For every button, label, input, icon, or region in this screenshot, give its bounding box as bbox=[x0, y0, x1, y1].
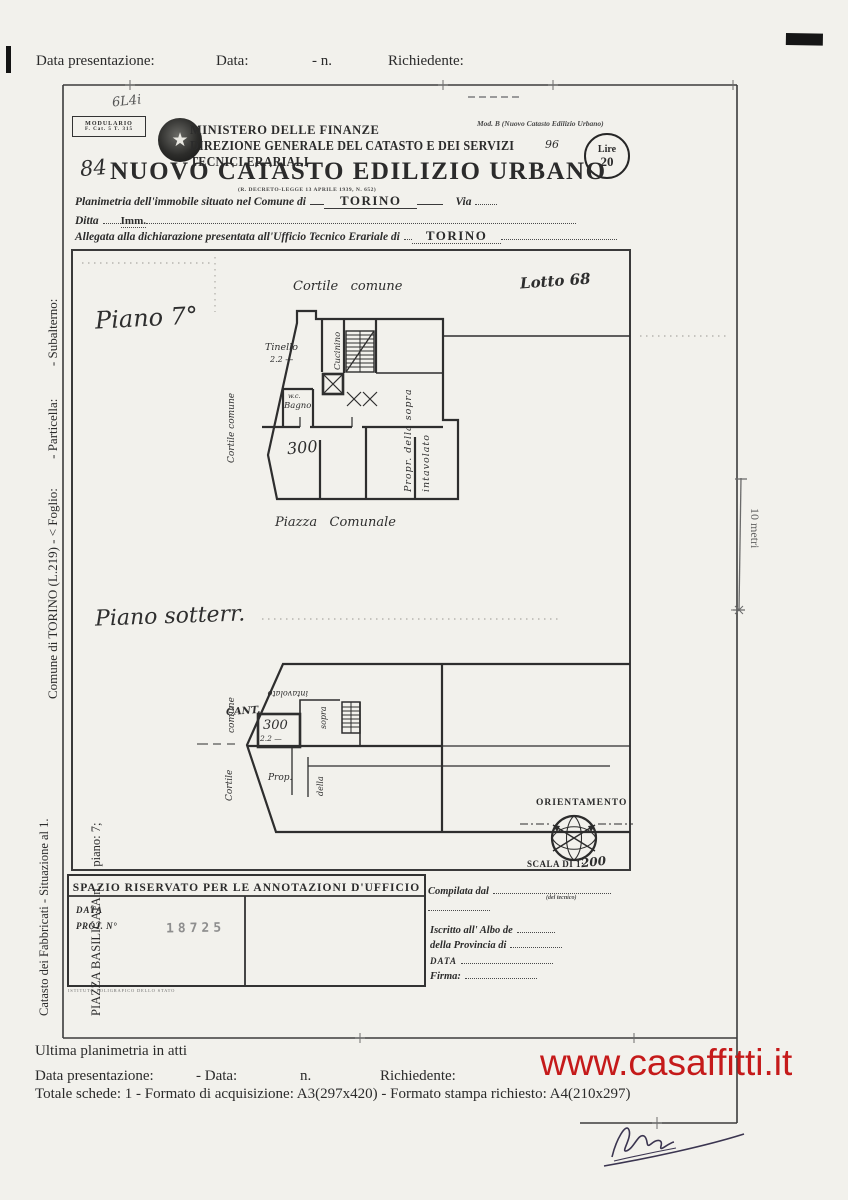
plan-area-number: 300 bbox=[286, 437, 318, 459]
annotation-compilata-row: Compilata dal bbox=[428, 881, 611, 899]
annotation-del-tecnico: (del tecnico) bbox=[546, 895, 577, 901]
piazza-comunale-label: Piazza Comunale bbox=[275, 515, 396, 530]
orientamento-label: ORIENTAMENTO bbox=[536, 798, 627, 808]
modulario-line2: F. Cat. 5 T. 315 bbox=[85, 127, 133, 132]
annotation-tiny-print: ISTITUTO POLIGRAFICO DELLO STATO bbox=[68, 988, 175, 993]
annotation-prot-label: PROT. N° bbox=[76, 921, 117, 931]
basement-dim: 2.2 — bbox=[260, 734, 282, 743]
footer-data-label: - Data: bbox=[196, 1068, 237, 1085]
annotation-firma-row: Firma: bbox=[430, 966, 537, 984]
watermark: www.casaffitti.it bbox=[540, 1042, 792, 1084]
basement-area-number: 300 bbox=[263, 718, 288, 733]
top-label-richiedente: Richiedente: bbox=[388, 53, 464, 70]
form-number-handwritten: 84 bbox=[79, 155, 108, 181]
scale-bar bbox=[733, 478, 747, 614]
basement-prop-label: Prop. bbox=[268, 773, 292, 783]
sidebar-indirizzo-line: PIAZZA BASILICATA n. piano: 7; bbox=[89, 823, 103, 1016]
direzione-handwritten-note: 96 bbox=[545, 138, 559, 151]
basement-floor-label: Piano sotterr. bbox=[95, 601, 246, 631]
scale-bar-label: 10 metri bbox=[748, 508, 762, 548]
top-label-n: - n. bbox=[312, 53, 332, 70]
handwritten-note: 6L4i bbox=[111, 93, 142, 111]
annotation-compilata-label: Compilata dal bbox=[428, 886, 489, 897]
field-ufficio-value: TORINO bbox=[412, 228, 502, 244]
mod-b-label: Mod. B (Nuovo Catasto Edilizio Urbano) bbox=[477, 119, 604, 128]
annotation-header-text: SPAZIO RISERVATO PER LE ANNOTAZIONI D'UF… bbox=[73, 882, 420, 894]
room-tinello-label: Tinello bbox=[265, 342, 298, 353]
scan-artifact-left bbox=[6, 46, 11, 73]
field-comune: Planimetria dell'immobile situato nel Co… bbox=[75, 192, 497, 210]
plan-floor-label: Piano 7° bbox=[94, 301, 198, 334]
sidebar-catasto-line: Catasto dei Fabbricati - Situazione al 1… bbox=[37, 818, 51, 1016]
top-label-data-presentazione: Data presentazione: bbox=[36, 53, 155, 70]
footer-n-label: n. bbox=[300, 1068, 311, 1085]
field-comune-value: TORINO bbox=[324, 193, 418, 209]
scan-artifact-top-right bbox=[786, 33, 823, 46]
annotation-header: SPAZIO RISERVATO PER LE ANNOTAZIONI D'UF… bbox=[68, 878, 425, 896]
room-cucinino-label: Cucinino bbox=[333, 332, 343, 370]
lire-label: Lire bbox=[598, 145, 616, 155]
ministero-title: MINISTERO DELLE FINANZE bbox=[190, 123, 379, 138]
basement-della-label: della bbox=[316, 776, 325, 796]
scanned-cadastral-document: Data presentazione: Data: - n. Richieden… bbox=[0, 0, 848, 1200]
room-tinello-dim: 2.2 — bbox=[270, 355, 293, 364]
field-ditta-label: Ditta bbox=[75, 215, 99, 227]
top-label-data: Data: bbox=[216, 53, 248, 70]
room-wc-label: w.c. bbox=[288, 392, 301, 400]
annotation-prot-value: 18725 bbox=[166, 920, 225, 936]
modulario-box: MODULARIO F. Cat. 5 T. 315 bbox=[72, 116, 146, 137]
field-ufficio: Allegata alla dichiarazione presentata a… bbox=[75, 227, 617, 245]
annotation-firma-label: Firma: bbox=[430, 971, 461, 982]
scala-handwritten-value: 200 bbox=[580, 854, 606, 871]
basement-sopra-label: sopra bbox=[319, 706, 328, 729]
plan-cortile-left-label: Cortile comune bbox=[227, 393, 237, 463]
field-via-label: Via bbox=[455, 196, 471, 208]
annotation-data-label: DATA bbox=[76, 905, 103, 915]
footer-richiedente-label: Richiedente: bbox=[380, 1068, 456, 1085]
room-bagno-label: Bagno bbox=[284, 401, 311, 411]
signature bbox=[604, 1128, 744, 1166]
annotation-data2-label: DATA bbox=[430, 956, 457, 966]
scala-label: SCALA DI 1: bbox=[527, 859, 585, 869]
field-comune-label: Planimetria dell'immobile situato nel Co… bbox=[75, 196, 306, 208]
footer-ultima-label: Ultima planimetria in atti bbox=[35, 1043, 187, 1060]
basement-intavolato-label: intavolato bbox=[268, 689, 308, 698]
document-title: NUOVO CATASTO EDILIZIO URBANO bbox=[110, 158, 607, 186]
footer-totale-label: Totale schede: 1 - Formato di acquisizio… bbox=[35, 1086, 631, 1103]
annotation-provincia-label: della Provincia di bbox=[430, 940, 506, 951]
field-ufficio-label: Allegata alla dichiarazione presentata a… bbox=[75, 231, 400, 243]
sidebar-comune-line: Comune di TORINO (L.219) - < Foglio: - P… bbox=[45, 299, 60, 699]
compass-icon bbox=[520, 816, 633, 860]
floorplan-piano7 bbox=[262, 311, 630, 499]
plan-cortile-top-label: Cortile comune bbox=[293, 279, 403, 294]
footer-presentazione-label: Data presentazione: bbox=[35, 1068, 154, 1085]
basement-cortile-label: Cortile bbox=[225, 770, 235, 801]
